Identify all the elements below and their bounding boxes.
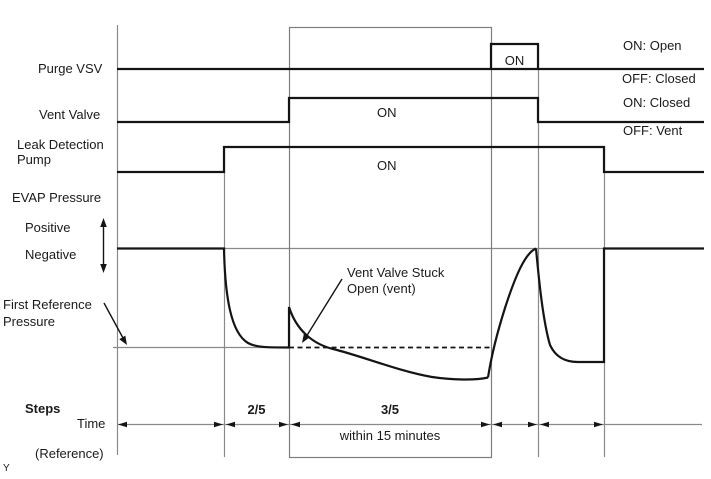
arrow-right-icon: [528, 422, 537, 428]
purge-on-state: ON: [491, 53, 538, 68]
vent-stuck-annotation-line1: Vent Valve Stuck: [347, 265, 444, 281]
arrow-right-icon: [481, 422, 490, 428]
timing-diagram: Purge VSV Vent Valve Leak Detection Pump…: [0, 0, 711, 479]
arrow-up-icon: [100, 218, 107, 227]
pointer-shaft: [306, 279, 342, 337]
pump-on-state: ON: [377, 158, 397, 173]
positive-label: Positive: [25, 220, 71, 235]
vent-on-state: ON: [377, 105, 397, 120]
vent-valve-label: Vent Valve: [39, 107, 100, 122]
evap-pressure-curve-pulldown: [117, 249, 289, 348]
steps-label: Steps: [25, 401, 60, 416]
vent-stuck-annotation: Vent Valve Stuck Open (vent): [347, 265, 444, 297]
arrow-left-icon: [540, 422, 549, 428]
vent-legend-off: OFF: Vent: [623, 123, 682, 138]
leak-pump-label-line2: Pump: [17, 152, 104, 167]
arrow-left-icon: [493, 422, 502, 428]
evap-pressure-curve-final: [536, 249, 704, 363]
first-reference-label-line1: First Reference: [3, 296, 92, 313]
arrow-right-icon: [279, 422, 288, 428]
evap-pressure-label: EVAP Pressure: [12, 190, 101, 205]
grid-lines: [113, 25, 702, 458]
first-reference-label-line2: Pressure: [3, 313, 92, 330]
leak-pump-waveform: [117, 147, 704, 172]
evap-pressure-curve-rise: [488, 249, 536, 378]
vent-legend-on: ON: Closed: [623, 95, 690, 110]
purge-vsv-label: Purge VSV: [38, 61, 102, 76]
duration-note: within 15 minutes: [289, 428, 491, 443]
first-reference-pointer: [104, 303, 127, 345]
step-3-5-label: 3/5: [289, 402, 491, 417]
figure-corner-marker: Y: [3, 461, 10, 476]
purge-legend-on: ON: Open: [623, 38, 682, 53]
arrow-right-icon: [214, 422, 223, 428]
evap-pressure-curve-stuck-decay: [289, 307, 488, 380]
arrow-left-icon: [226, 422, 235, 428]
signal-waveforms: [117, 44, 704, 380]
leak-pump-label-line1: Leak Detection: [17, 137, 104, 152]
arrow-right-icon: [594, 422, 603, 428]
step-2-5-label: 2/5: [224, 402, 289, 417]
vent-valve-waveform: [117, 98, 704, 122]
vent-stuck-pointer: [302, 279, 342, 343]
time-label: Time: [77, 416, 105, 431]
reference-label: (Reference): [35, 446, 104, 461]
arrow-down-right-icon: [119, 336, 127, 345]
leak-pump-label: Leak Detection Pump: [17, 137, 104, 167]
arrow-left-icon: [118, 422, 127, 428]
negative-label: Negative: [25, 247, 76, 262]
purge-legend-off: OFF: Closed: [622, 71, 696, 86]
step3-highlight-box: [290, 28, 492, 458]
pressure-polarity-arrow: [100, 218, 107, 273]
arrow-left-icon: [291, 422, 300, 428]
pointer-shaft: [104, 303, 123, 338]
first-reference-label: First Reference Pressure: [3, 296, 92, 330]
vent-stuck-annotation-line2: Open (vent): [347, 281, 444, 297]
arrow-down-icon: [100, 264, 107, 273]
